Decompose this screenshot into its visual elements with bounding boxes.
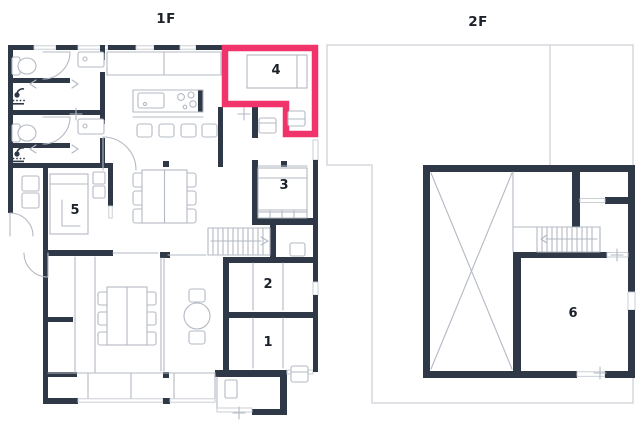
kitchen-island-icon bbox=[133, 90, 203, 117]
dimension-cross bbox=[238, 108, 250, 120]
walls-2f bbox=[423, 165, 635, 378]
dimension-cross bbox=[611, 249, 623, 261]
kitchen bbox=[103, 52, 221, 170]
stool bbox=[202, 124, 217, 137]
room-label-5: 5 bbox=[70, 203, 79, 218]
toilet-icon bbox=[12, 57, 36, 75]
bed-icon bbox=[50, 174, 88, 234]
arrow-right-icon bbox=[211, 237, 268, 245]
room-label-1: 1 bbox=[263, 335, 272, 350]
dining-table-icon bbox=[133, 170, 196, 223]
vanity-icon bbox=[78, 119, 104, 134]
shower-icon bbox=[13, 89, 25, 105]
bathroom-unit-2 bbox=[12, 108, 104, 162]
floor-plan-canvas: 1F bbox=[0, 0, 640, 440]
stool bbox=[181, 124, 196, 137]
footprint-outline bbox=[327, 45, 633, 403]
floorplan-2f: 2F bbox=[327, 14, 635, 403]
door-arc-icon bbox=[43, 52, 70, 79]
round-table-icon bbox=[184, 289, 210, 344]
arrow-left-icon bbox=[541, 235, 597, 243]
low-table-icon bbox=[98, 287, 156, 345]
room-label-6: 6 bbox=[568, 306, 577, 321]
room-2: 2 bbox=[253, 263, 283, 310]
tatami-room bbox=[75, 253, 210, 372]
stool bbox=[137, 124, 152, 137]
dimension-cross bbox=[594, 367, 606, 379]
floorplan-1f: 1F bbox=[8, 11, 318, 419]
dimension-cross bbox=[70, 108, 82, 120]
stool bbox=[159, 124, 174, 137]
floor-title-1f: 1F bbox=[156, 11, 176, 27]
door-arc-icon bbox=[10, 213, 33, 236]
room-label-2: 2 bbox=[263, 277, 272, 292]
room-6: 6 bbox=[568, 306, 577, 321]
floor-title-2f: 2F bbox=[468, 14, 488, 30]
room-label-4: 4 bbox=[271, 63, 280, 78]
room-label-3: 3 bbox=[279, 178, 288, 193]
room-1: 1 bbox=[253, 318, 283, 368]
laundry-units bbox=[22, 176, 39, 208]
shower-icon bbox=[13, 148, 25, 162]
toilet-icon bbox=[12, 124, 36, 142]
room-5: 5 bbox=[50, 172, 105, 234]
room-3: 3 bbox=[258, 166, 307, 218]
shoe-cabinet bbox=[225, 380, 237, 398]
stairs-icon-1f bbox=[208, 228, 270, 255]
door-arc-icon bbox=[43, 117, 70, 144]
vanity-icon bbox=[78, 52, 104, 67]
stairs-icon-2f bbox=[537, 227, 600, 252]
washbasin bbox=[290, 243, 305, 256]
void-cross-icon bbox=[431, 172, 537, 369]
